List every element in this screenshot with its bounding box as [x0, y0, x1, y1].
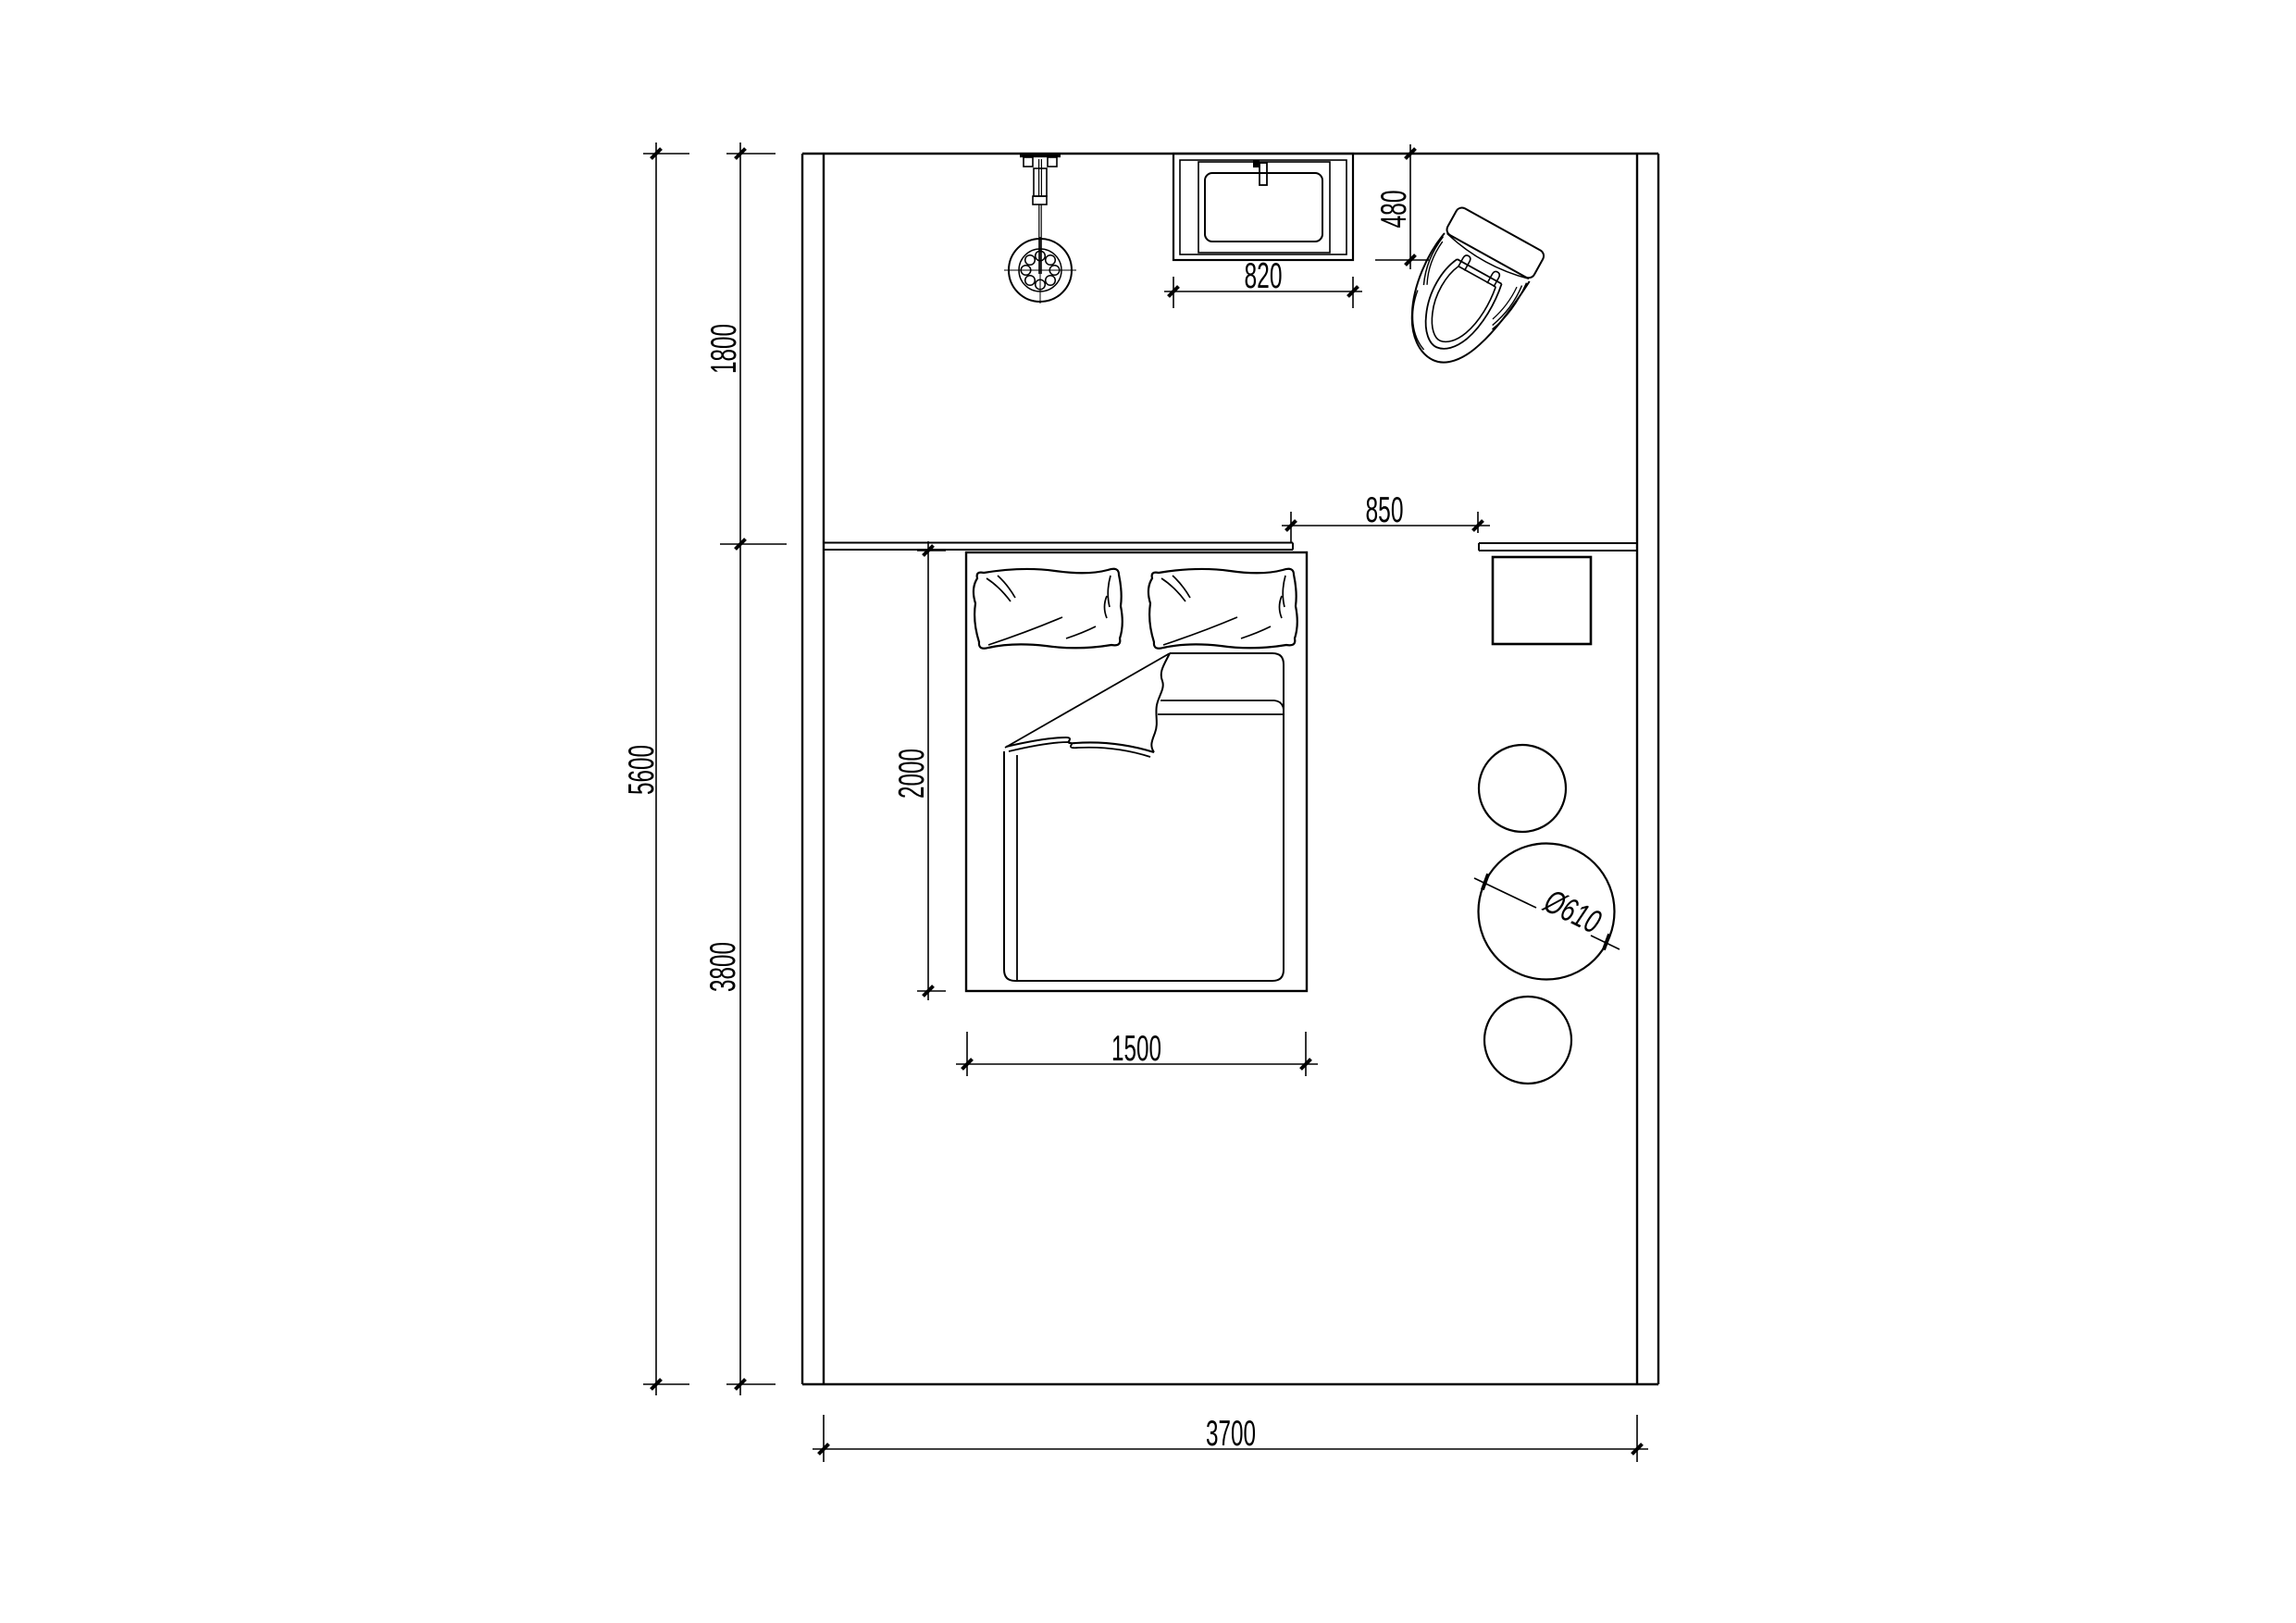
- svg-text:480: 480: [1374, 191, 1414, 229]
- svg-text:5600: 5600: [622, 745, 662, 795]
- svg-text:1800: 1800: [704, 324, 744, 374]
- svg-text:1500: 1500: [1111, 1029, 1161, 1069]
- svg-text:3700: 3700: [1206, 1414, 1256, 1454]
- svg-text:2000: 2000: [892, 749, 932, 799]
- svg-text:3800: 3800: [703, 942, 743, 992]
- svg-text:820: 820: [1245, 256, 1283, 296]
- svg-text:850: 850: [1366, 490, 1404, 530]
